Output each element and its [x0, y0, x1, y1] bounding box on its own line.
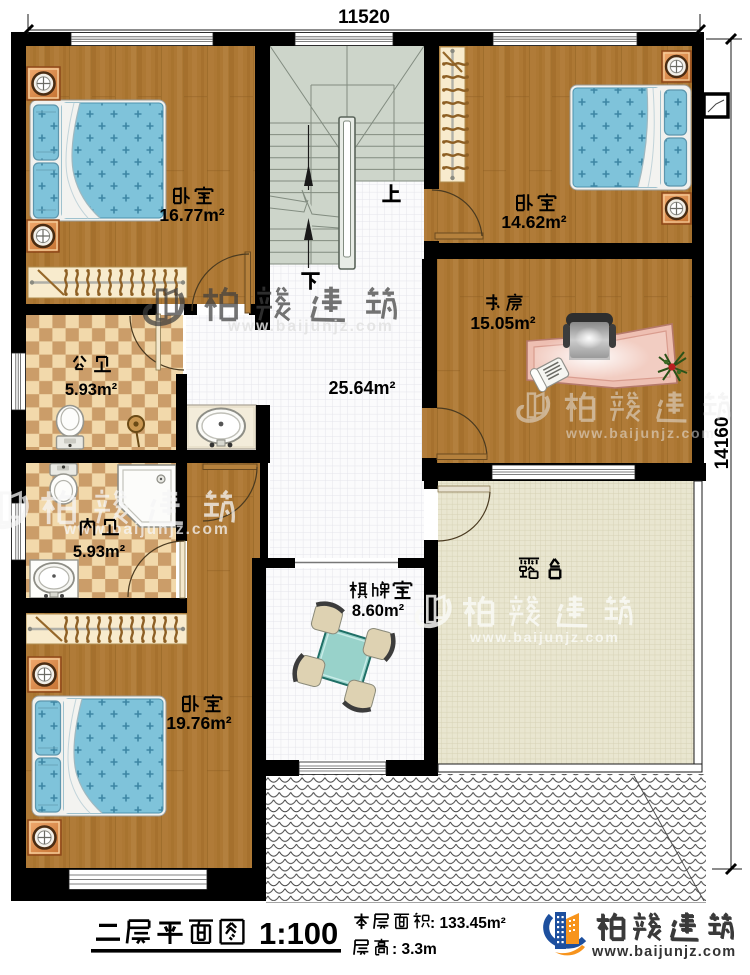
svg-text:15.05m²: 15.05m² [470, 313, 535, 333]
svg-text:1:100: 1:100 [259, 916, 338, 951]
svg-text:11520: 11520 [338, 7, 390, 28]
svg-text:www.baijunjz.com: www.baijunjz.com [227, 318, 394, 335]
svg-text:: 133.45m²: : 133.45m² [430, 915, 506, 932]
svg-text:www.baijunjz.com: www.baijunjz.com [565, 425, 716, 441]
svg-text:14.62m²: 14.62m² [501, 212, 566, 232]
svg-text:25.64m²: 25.64m² [328, 378, 395, 398]
svg-text:8.60m²: 8.60m² [352, 602, 405, 620]
svg-text:: 3.3m: : 3.3m [392, 941, 437, 958]
svg-text:www.baijunjz.com: www.baijunjz.com [469, 629, 620, 645]
svg-text:19.76m²: 19.76m² [166, 713, 231, 733]
svg-text:5.93m²: 5.93m² [65, 381, 118, 399]
svg-text:16.77m²: 16.77m² [159, 205, 224, 225]
svg-text:www.baijunjz.com: www.baijunjz.com [591, 944, 736, 960]
svg-text:5.93m²: 5.93m² [73, 543, 126, 561]
